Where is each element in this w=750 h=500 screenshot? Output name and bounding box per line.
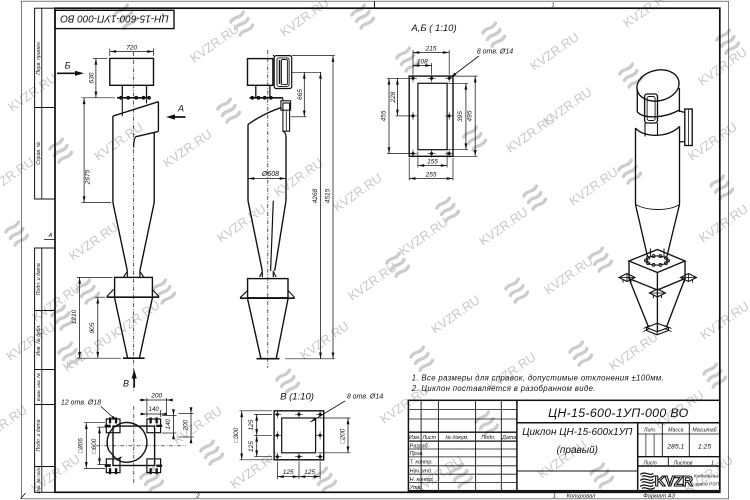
svg-text:140: 140 — [149, 406, 160, 413]
svg-text:630: 630 — [89, 72, 96, 83]
svg-text:Разраб.: Разраб. — [410, 443, 430, 449]
svg-text:905: 905 — [89, 322, 96, 333]
svg-text:4515: 4515 — [324, 188, 331, 203]
svg-text:В (1:10): В (1:10) — [280, 392, 314, 403]
svg-text:(правый): (правый) — [557, 445, 598, 456]
svg-text:А: А — [48, 233, 53, 239]
svg-text:Инв. № подл.: Инв. № подл. — [36, 465, 41, 494]
svg-text:2675: 2675 — [85, 169, 92, 185]
svg-text:Дата: Дата — [501, 435, 516, 441]
svg-text:108: 108 — [417, 58, 428, 65]
svg-text:Циклон ЦН-15-600х1УП: Циклон ЦН-15-600х1УП — [522, 427, 633, 438]
svg-text:1:25: 1:25 — [698, 444, 711, 451]
svg-text:200: 200 — [150, 393, 162, 400]
svg-text:ЦН-15-600-1УП-000 ВО: ЦН-15-600-1УП-000 ВО — [60, 13, 169, 24]
svg-text:Формат А3: Формат А3 — [643, 494, 675, 500]
svg-text:Подп. и дата: Подп. и дата — [36, 263, 42, 295]
svg-text:Лист: Лист — [642, 460, 657, 466]
svg-text:1210: 1210 — [71, 309, 78, 324]
svg-text:140: 140 — [165, 418, 172, 429]
svg-text:2. Циклон поставляется в разоб: 2. Циклон поставляется в разобранном вид… — [411, 384, 596, 393]
svg-text:Нач.отд.: Нач.отд. — [410, 468, 433, 474]
svg-text:Подп.: Подп. — [481, 435, 495, 441]
svg-text:1: 1 — [553, 494, 556, 500]
svg-text:□600: □600 — [91, 438, 98, 453]
svg-text:Масса: Масса — [668, 427, 683, 433]
svg-text:Утв.: Утв. — [409, 485, 422, 491]
svg-text:12 отв. Ø18: 12 отв. Ø18 — [61, 400, 101, 407]
svg-text:125: 125 — [304, 469, 315, 476]
svg-text:В: В — [123, 379, 129, 389]
svg-text:228: 228 — [390, 91, 397, 103]
svg-text:255: 255 — [425, 171, 437, 178]
svg-text:Лист: Лист — [421, 435, 436, 441]
svg-text:Инв. № дубл.: Инв. № дубл. — [36, 324, 42, 355]
svg-text:125: 125 — [283, 469, 294, 476]
svg-text:Н. контр.: Н. контр. — [410, 477, 434, 483]
svg-text:285,1: 285,1 — [666, 444, 684, 451]
svg-text:KVZR: KVZR — [655, 473, 694, 490]
svg-text:395: 395 — [457, 111, 464, 122]
svg-text:125: 125 — [248, 441, 255, 452]
svg-text:8 отв. Ø14: 8 отв. Ø14 — [347, 394, 383, 401]
svg-text:1. Все размеры для справок, до: 1. Все размеры для справок, допустимые о… — [412, 373, 664, 382]
svg-text:8 отв. Ø14: 8 отв. Ø14 — [477, 49, 513, 56]
svg-text:Перв. примен.: Перв. примен. — [36, 41, 42, 75]
svg-text:Листов: Листов — [673, 460, 693, 466]
svg-text:Пров.: Пров. — [410, 451, 424, 457]
svg-text:125: 125 — [248, 419, 255, 430]
svg-text:Б: Б — [65, 61, 71, 71]
svg-text:№ докум.: № докум. — [445, 435, 468, 441]
svg-text:Взам. инв. №: Взам. инв. № — [36, 373, 41, 401]
svg-text:завод РЭП: завод РЭП — [694, 482, 719, 488]
svg-text:А,Б ( 1:10): А,Б ( 1:10) — [410, 23, 456, 34]
svg-text:ЦН-15-600-1УП-000 ВО: ЦН-15-600-1УП-000 ВО — [548, 406, 689, 420]
svg-text:495: 495 — [467, 110, 474, 121]
svg-text:215: 215 — [425, 45, 437, 52]
svg-text:А: А — [177, 104, 184, 114]
svg-text:Котельный: Котельный — [694, 473, 720, 480]
svg-text:Т. контр.: Т. контр. — [410, 460, 433, 466]
svg-text:□806: □806 — [78, 438, 85, 453]
svg-text:Справ. №: Справ. № — [36, 141, 42, 165]
svg-text:Масштаб: Масштаб — [692, 427, 717, 433]
svg-text:665: 665 — [297, 89, 304, 100]
svg-text:□200: □200 — [339, 428, 346, 443]
svg-text:4268: 4268 — [312, 188, 319, 203]
svg-text:Копировал: Копировал — [567, 494, 597, 500]
svg-text:455: 455 — [380, 110, 387, 121]
svg-text:1: 1 — [711, 461, 714, 467]
svg-text:155: 155 — [427, 158, 438, 165]
svg-text:Изм.: Изм. — [409, 435, 420, 441]
svg-text:Лит.: Лит. — [643, 427, 656, 433]
svg-text:Подп. и дата: Подп. и дата — [36, 419, 42, 451]
svg-text:Ø608: Ø608 — [261, 171, 279, 178]
svg-text:200: 200 — [182, 419, 189, 431]
svg-text:□300: □300 — [233, 427, 240, 442]
svg-text:720: 720 — [126, 44, 137, 51]
